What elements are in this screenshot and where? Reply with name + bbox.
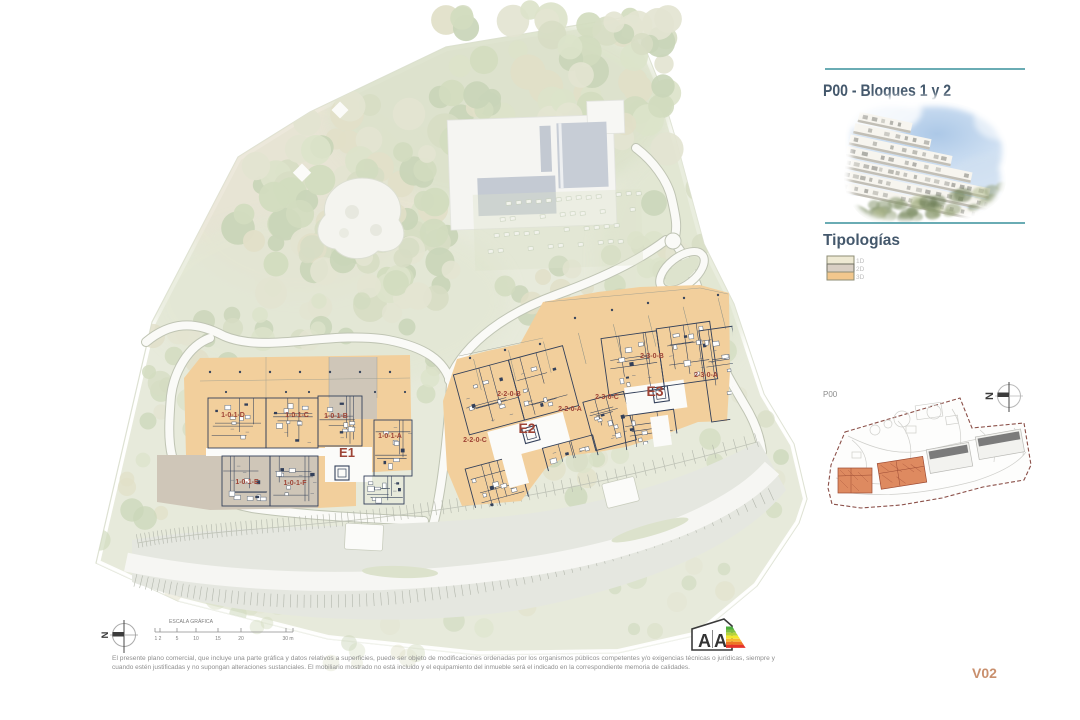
svg-text:2-2-0-C: 2-2-0-C xyxy=(463,437,487,444)
svg-text:El presente plano comercial, q: El presente plano comercial, que incluye… xyxy=(112,655,776,662)
svg-text:E1: E1 xyxy=(339,445,355,460)
svg-text:1-0-1-C: 1-0-1-C xyxy=(285,412,309,419)
svg-text:2-3-0-C: 2-3-0-C xyxy=(595,394,619,401)
svg-text:1-0-1-D: 1-0-1-D xyxy=(221,412,245,419)
svg-text:1D: 1D xyxy=(856,258,865,265)
svg-text:2-3-0-A: 2-3-0-A xyxy=(694,372,718,379)
svg-text:20: 20 xyxy=(238,636,244,642)
svg-text:A: A xyxy=(714,631,727,651)
svg-text:1-0-1-F: 1-0-1-F xyxy=(284,480,308,487)
svg-text:2-3-0-B: 2-3-0-B xyxy=(640,353,664,360)
svg-text:N: N xyxy=(984,392,996,400)
svg-text:2-2-0-A: 2-2-0-A xyxy=(558,406,582,413)
svg-text:1-0-1-B: 1-0-1-B xyxy=(324,413,348,420)
svg-text:10: 10 xyxy=(193,636,199,642)
svg-text:1-0-1-A: 1-0-1-A xyxy=(378,433,402,440)
svg-text:1-0-1-E: 1-0-1-E xyxy=(235,479,259,486)
svg-text:15: 15 xyxy=(215,636,221,642)
svg-text:3D: 3D xyxy=(856,274,865,281)
svg-text:V02: V02 xyxy=(972,665,997,681)
svg-text:A: A xyxy=(698,631,711,651)
svg-text:2-2-0-B: 2-2-0-B xyxy=(497,391,521,398)
svg-text:cuando estén justificadas y no: cuando estén justificadas y no supongan … xyxy=(112,664,690,671)
svg-text:30 m: 30 m xyxy=(282,636,293,642)
svg-text:5: 5 xyxy=(176,636,179,642)
svg-text:1 2: 1 2 xyxy=(155,636,162,642)
svg-text:Tipologías: Tipologías xyxy=(823,232,900,249)
svg-text:P00: P00 xyxy=(823,390,838,399)
svg-text:N: N xyxy=(100,631,111,638)
svg-text:E3: E3 xyxy=(646,383,663,399)
svg-text:E2: E2 xyxy=(518,420,535,436)
svg-text:2D: 2D xyxy=(856,266,865,273)
svg-text:ESCALA GRÁFICA: ESCALA GRÁFICA xyxy=(169,618,214,625)
